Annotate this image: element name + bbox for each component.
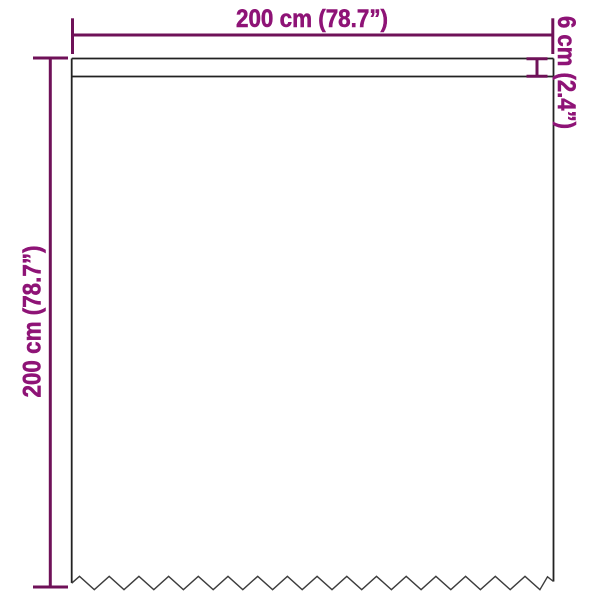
svg-text:200 cm (78.7”): 200 cm (78.7”) <box>19 246 47 398</box>
svg-text:200 cm (78.7”): 200 cm (78.7”) <box>236 5 388 33</box>
svg-text:6 cm (2.4”): 6 cm (2.4”) <box>552 16 580 129</box>
